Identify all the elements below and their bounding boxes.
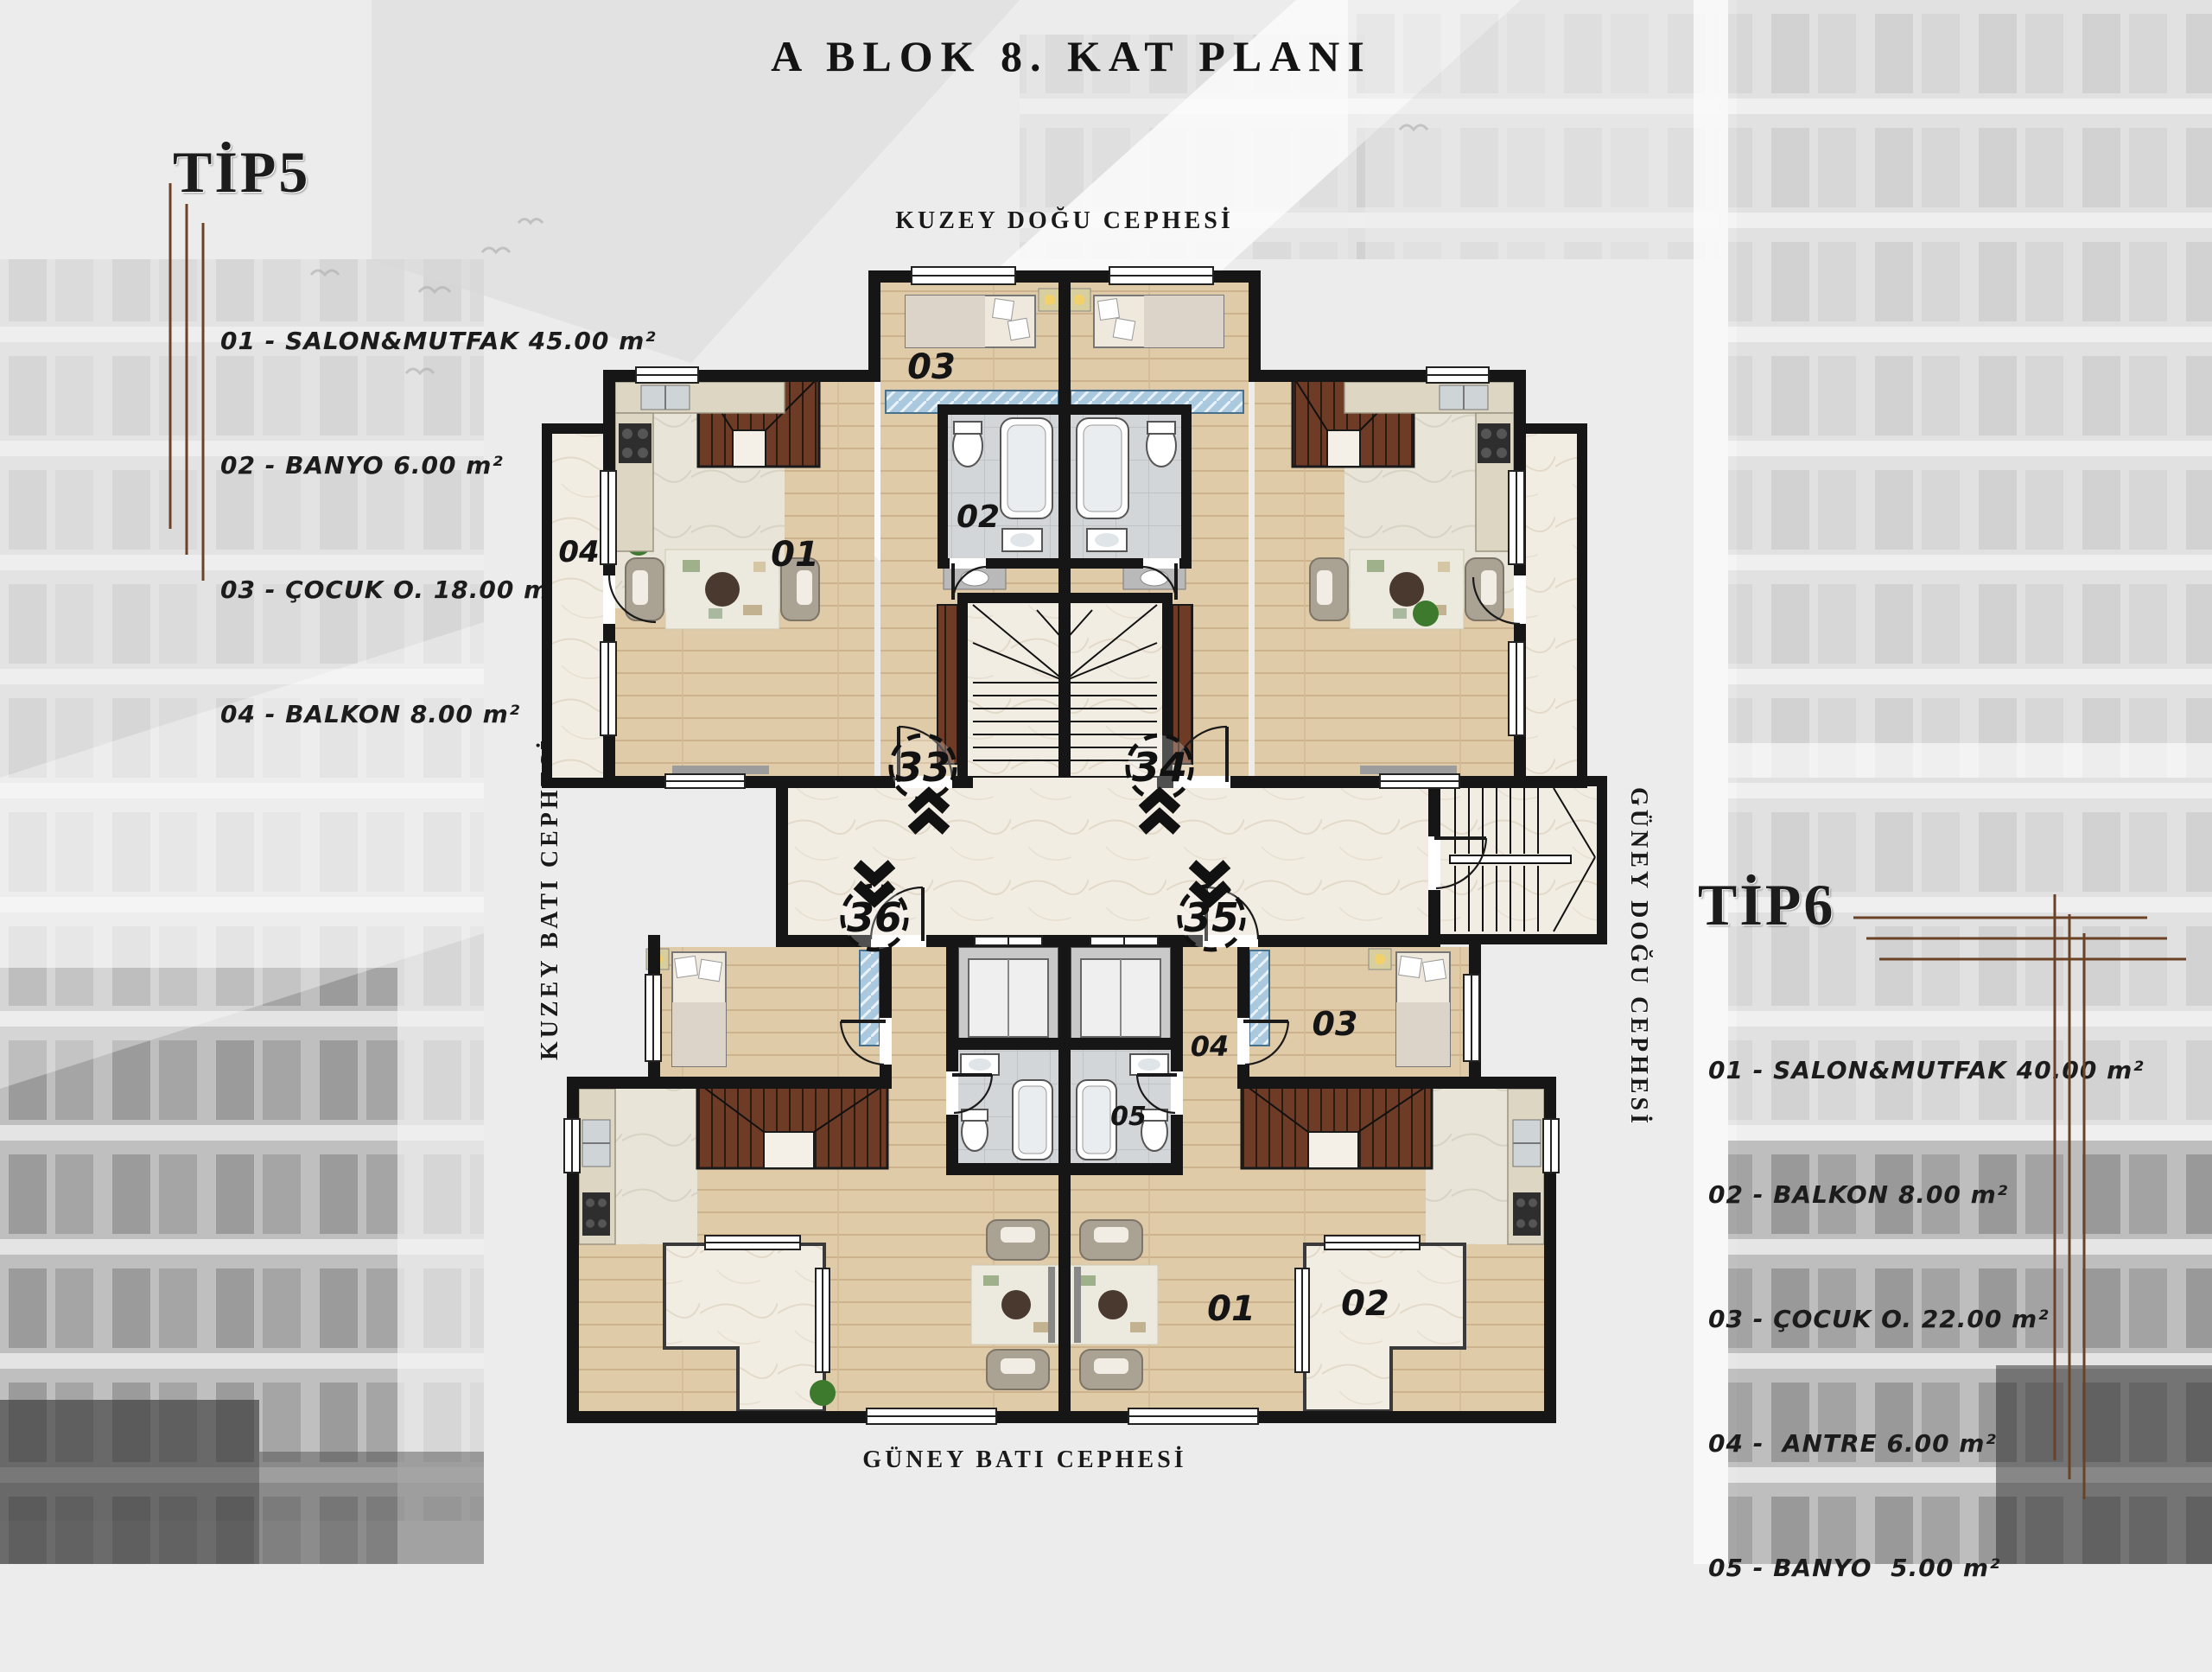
unit-33-number: 33 bbox=[895, 744, 950, 791]
floor-plan: 03 02 01 04 03 04 05 01 02 33 34 35 36 bbox=[0, 0, 2212, 1564]
stairs-unit36 bbox=[697, 1083, 887, 1168]
room-label-banyo-33: 02 bbox=[957, 499, 1000, 535]
room-label-salon-35: 01 bbox=[1207, 1289, 1255, 1329]
unit-34-number: 34 bbox=[1132, 744, 1187, 791]
plant bbox=[1413, 601, 1439, 626]
room-label-cocuk-33: 03 bbox=[907, 347, 956, 387]
kitchen bbox=[1508, 1089, 1544, 1244]
room-label-antre-35: 04 bbox=[1191, 1030, 1230, 1063]
room-label-banyo-35: 05 bbox=[1110, 1102, 1147, 1132]
room-label-salon-33: 01 bbox=[771, 535, 819, 575]
stairs-unit35 bbox=[1242, 1083, 1432, 1168]
room-label-balkon-33: 04 bbox=[558, 535, 599, 569]
kitchen bbox=[579, 1089, 615, 1244]
plant bbox=[810, 1380, 836, 1406]
room-label-cocuk-35: 03 bbox=[1313, 1005, 1358, 1043]
floor-plan-sheet: { "title": "A BLOK 8. KAT PLANI", "legen… bbox=[0, 0, 2212, 1564]
room-label-balkon-35: 02 bbox=[1341, 1284, 1389, 1324]
